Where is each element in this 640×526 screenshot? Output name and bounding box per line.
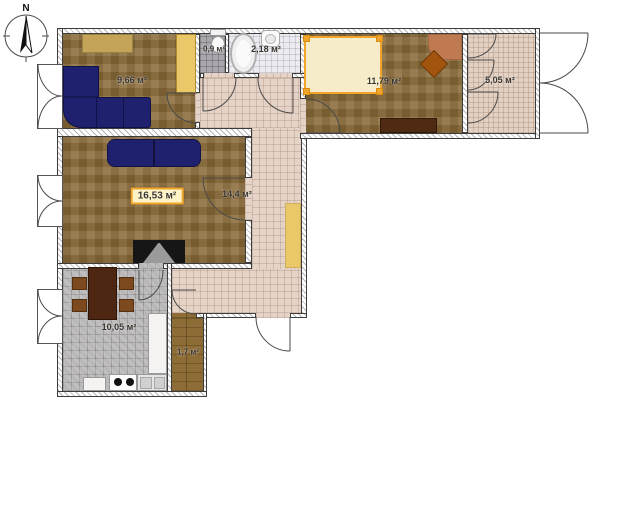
area-label-wc[interactable]: 0,9 м² — [203, 45, 225, 54]
wall-kitchen-right — [167, 263, 172, 397]
wardrobe[interactable] — [176, 34, 196, 93]
dresser[interactable] — [380, 118, 437, 133]
window-living — [37, 175, 63, 227]
wall-bath-bottom-b — [234, 73, 259, 78]
floor-plan: N 9,66 м² 0,9 м² 2,18 м² 11,79 м² 5,05 м… — [0, 0, 640, 526]
kitchen-counter[interactable] — [148, 313, 167, 374]
doorway-entrance — [256, 313, 290, 318]
sink-basin — [140, 377, 152, 389]
sink-bowl — [265, 34, 276, 44]
wall-wc-bath — [225, 34, 229, 73]
wall-corridor-right — [301, 133, 307, 318]
doorway-storage — [172, 313, 196, 318]
wall-living-right-lower — [245, 220, 252, 263]
window-kitchen — [37, 289, 63, 344]
wall-bedroom-balcony — [462, 34, 468, 133]
tv-screen — [139, 242, 179, 263]
burner — [114, 378, 122, 386]
wall-living-right-upper — [245, 137, 252, 178]
wall-bottom — [57, 391, 207, 397]
selection-handle[interactable] — [303, 35, 310, 42]
area-label-storage[interactable]: 1,7 м² — [177, 348, 199, 357]
toilet-tank[interactable] — [210, 29, 226, 36]
rug[interactable] — [82, 34, 133, 53]
kitchen-cabinet[interactable] — [83, 377, 106, 391]
wall-balcony-right — [535, 28, 540, 139]
area-label-balcony[interactable]: 5,05 м² — [485, 75, 515, 85]
area-label-hallway[interactable]: 14,4 м² — [222, 189, 252, 199]
doorway-lounge — [195, 93, 200, 122]
window-lounge — [37, 64, 63, 129]
room-floor-hallway-lower[interactable] — [172, 269, 301, 313]
doorway-wc — [204, 73, 234, 78]
wall-living-bottom-b — [163, 263, 252, 269]
area-label-living-selected[interactable]: 16,53 м² — [131, 188, 184, 205]
area-label-bedroom[interactable]: 11,79 м² — [367, 76, 401, 86]
doorway-bathroom — [259, 73, 292, 78]
doorway-bedroom — [300, 99, 306, 133]
wall-lounge-living — [57, 128, 252, 137]
selection-handle[interactable] — [376, 88, 383, 95]
compass-needle-light — [26, 16, 32, 53]
bathtub-inner — [236, 40, 251, 67]
tv[interactable] — [133, 240, 185, 263]
chair[interactable] — [119, 277, 134, 290]
wall-bath-bottom-a — [200, 73, 204, 78]
compass-needle-dark — [20, 16, 26, 53]
corner-sofa-horizontal[interactable] — [96, 97, 151, 128]
compass-rose: N — [3, 3, 49, 62]
sink-counter[interactable] — [137, 374, 167, 391]
selection-handle[interactable] — [303, 88, 310, 95]
doorway-living — [245, 178, 252, 220]
area-label-lounge[interactable]: 9,66 м² — [117, 75, 147, 85]
room-floor-hallway-upper[interactable] — [200, 78, 300, 128]
sofa[interactable] — [107, 139, 201, 167]
door-swing-entrance — [256, 317, 290, 351]
hallway-rug[interactable] — [285, 203, 301, 268]
burner — [126, 378, 134, 386]
stove[interactable] — [109, 374, 137, 391]
chair[interactable] — [72, 299, 87, 312]
compass-north-label: N — [22, 3, 29, 14]
selection-handle[interactable] — [376, 35, 383, 42]
doorway-kitchen — [139, 263, 163, 269]
wall-bedroom-bottom — [300, 133, 540, 139]
sink-basin — [154, 377, 165, 389]
balcony-door-swing — [540, 33, 588, 133]
corner-sofa-vertical[interactable] — [63, 66, 99, 128]
chair[interactable] — [119, 299, 134, 312]
area-label-bathroom[interactable]: 2,18 м² — [251, 44, 281, 54]
wall-hall-bottom-b — [290, 313, 307, 318]
chair[interactable] — [72, 277, 87, 290]
dining-table[interactable] — [88, 267, 117, 320]
area-label-kitchen[interactable]: 10,05 м² — [102, 322, 137, 332]
wall-storage-right — [203, 313, 207, 397]
